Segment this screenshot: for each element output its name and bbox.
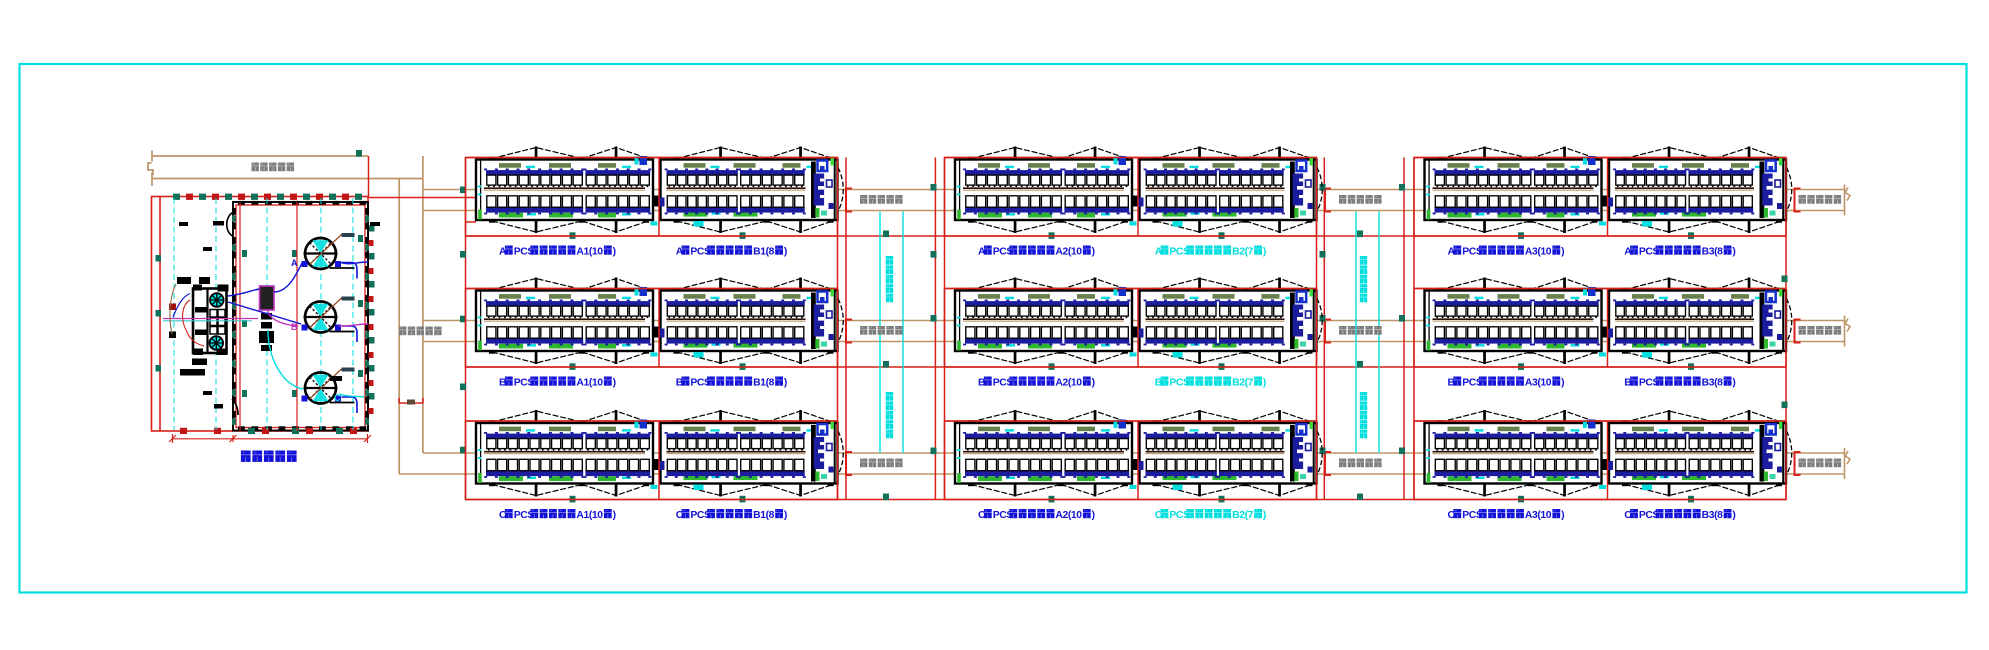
svg-text:B2(7: B2(7 [1232,510,1254,521]
svg-text:): ) [1561,510,1564,521]
svg-text:A3(10: A3(10 [1525,246,1552,257]
svg-text:B1(8: B1(8 [753,246,775,257]
svg-text:B2(7: B2(7 [1232,377,1254,388]
svg-text:A1(10: A1(10 [576,246,603,257]
svg-text:A1(10: A1(10 [576,510,603,521]
svg-text:A2(10: A2(10 [1055,510,1082,521]
svg-text:A3(10: A3(10 [1525,510,1552,521]
svg-text:): ) [1263,510,1266,521]
svg-text:): ) [1092,510,1095,521]
svg-text:): ) [1732,377,1735,388]
svg-text:): ) [784,510,787,521]
svg-text:): ) [1732,246,1735,257]
svg-text:B2(7: B2(7 [1232,246,1254,257]
svg-text:): ) [1263,377,1266,388]
svg-text:A3(10: A3(10 [1525,377,1552,388]
svg-text:): ) [1561,246,1564,257]
svg-text:): ) [1561,377,1564,388]
svg-text:): ) [784,377,787,388]
svg-text:A2(10: A2(10 [1055,246,1082,257]
svg-text:): ) [613,246,616,257]
svg-text:): ) [613,377,616,388]
svg-text:): ) [1263,246,1266,257]
svg-text:A2(10: A2(10 [1055,377,1082,388]
svg-text:A1(10: A1(10 [576,377,603,388]
svg-text:B1(8: B1(8 [753,510,775,521]
svg-text:A: A [291,258,298,268]
svg-text:B1(8: B1(8 [753,377,775,388]
svg-text:B3(8: B3(8 [1702,510,1724,521]
svg-text:): ) [1092,377,1095,388]
svg-text:B3(8: B3(8 [1702,377,1724,388]
svg-text:B3(8: B3(8 [1702,246,1724,257]
svg-text:): ) [613,510,616,521]
svg-text:): ) [1092,246,1095,257]
svg-text:): ) [784,246,787,257]
svg-text:): ) [1732,510,1735,521]
